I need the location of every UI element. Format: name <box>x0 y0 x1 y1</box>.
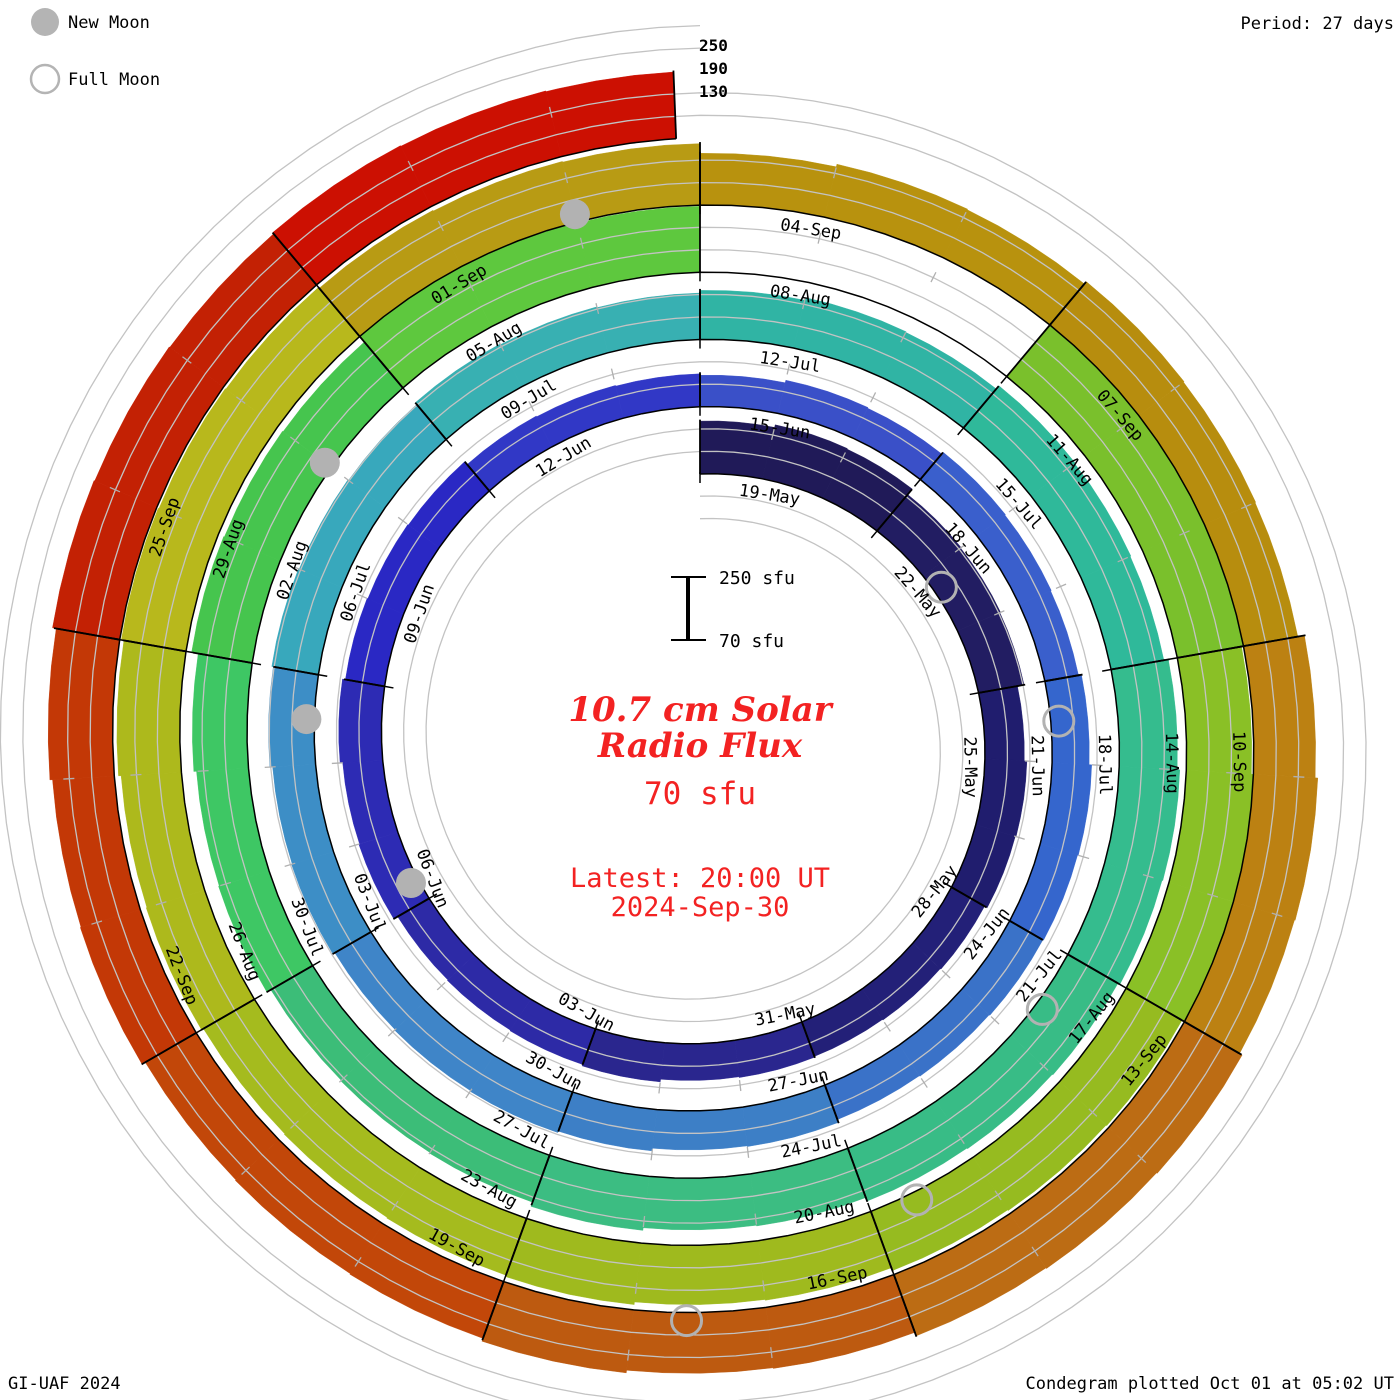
flux-segment-04-Sep <box>943 210 1084 325</box>
day-tick <box>747 1147 748 1158</box>
date-label-10-Sep: 10-Sep <box>1228 731 1249 793</box>
date-label-21-Jun: 21-Jun <box>1027 735 1048 797</box>
scale-min-label: 70 sfu <box>719 631 784 652</box>
day-tick <box>659 1083 660 1094</box>
flux-segment-27-Jun <box>558 1092 657 1151</box>
current-flux-value: 70 sfu <box>400 776 1000 812</box>
flux-segment-20-Aug <box>635 1241 766 1305</box>
full-moon-icon <box>31 65 59 93</box>
day-tick <box>265 767 276 768</box>
day-tick <box>63 778 74 779</box>
new-moon-icon <box>31 8 59 36</box>
radial-scale-190: 190 <box>699 57 728 80</box>
latest-reading: Latest: 20:00 UT 2024-Sep-30 <box>400 864 1000 922</box>
legend-full-moon-label: Full Moon <box>68 70 160 90</box>
period-label: Period: 27 days <box>1240 14 1394 34</box>
flux-segment-28-Sep <box>546 72 676 157</box>
chart-title-line1: 10.7 cm Solar <box>400 692 1000 728</box>
flux-segment-30-Jul <box>197 768 270 886</box>
radial-scale-250: 250 <box>699 34 728 57</box>
date-label-14-Aug: 14-Aug <box>1161 732 1182 794</box>
new-moon-marker-04-Aug <box>310 448 340 478</box>
plotted-timestamp: Condegram plotted Oct 01 at 05:02 UT <box>1026 1374 1394 1394</box>
radial-scale-labels: 250 190 130 <box>699 34 728 103</box>
scale-max-label: 250 sfu <box>719 568 795 589</box>
radial-scale-130: 130 <box>699 80 728 103</box>
chart-title: 10.7 cm Solar Radio Flux <box>400 692 1000 764</box>
credit-label: GI-UAF 2024 <box>8 1374 121 1394</box>
day-tick <box>740 1080 741 1091</box>
flux-segment-18-Jun <box>1019 591 1078 681</box>
date-label-18-Jul: 18-Jul <box>1094 734 1115 796</box>
latest-date: 2024-Sep-30 <box>400 893 1000 922</box>
day-tick <box>198 771 209 772</box>
flux-segment-04-Sep <box>824 164 967 258</box>
moon-legend <box>31 8 59 93</box>
day-tick <box>1293 777 1304 778</box>
legend-new-moon-label: New Moon <box>68 13 150 33</box>
flux-segment-24-Jul <box>643 1174 756 1230</box>
flux-segment-31-May <box>661 1040 740 1080</box>
day-tick <box>921 1078 927 1087</box>
flux-scale-key: 250 sfu 70 sfu <box>671 568 795 652</box>
latest-time: Latest: 20:00 UT <box>400 864 1000 893</box>
center-annotation: 10.7 cm Solar Radio Flux 70 sfu Latest: … <box>400 692 1000 922</box>
flux-segment-24-Jun <box>825 1045 920 1120</box>
flux-segment-27-Jun <box>653 1107 748 1150</box>
chart-title-line2: Radio Flux <box>400 728 1000 764</box>
flux-segment-03-Jul <box>273 764 334 864</box>
flux-segment-22-Sep <box>48 629 120 780</box>
condegram-page: 19-May22-May25-May28-May31-May03-Jun06-J… <box>0 0 1400 1400</box>
new-moon-marker-05-Jul <box>291 704 321 734</box>
flux-segment-30-Jul <box>192 654 252 772</box>
flux-segment-26-Aug <box>117 640 186 776</box>
day-tick <box>332 763 343 764</box>
new-moon-marker-03-Sep <box>560 199 590 229</box>
day-tick <box>130 775 141 776</box>
